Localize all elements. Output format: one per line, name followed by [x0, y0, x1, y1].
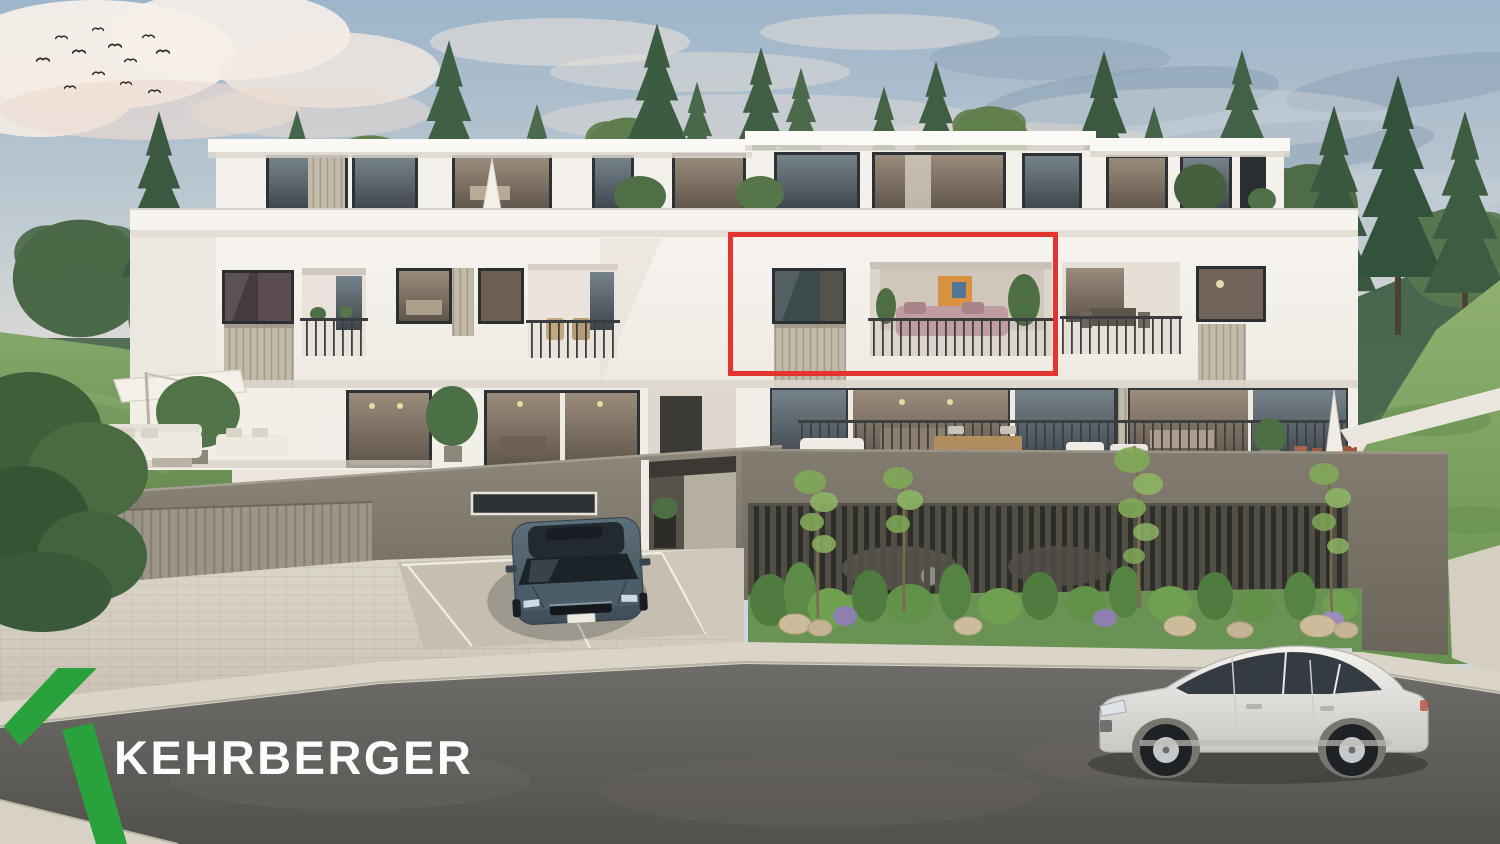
- brand-name: KEHRBERGER: [114, 730, 473, 785]
- window-c: [396, 268, 452, 324]
- window-a: [222, 270, 294, 324]
- apartment-building: [40, 131, 1358, 472]
- wood-slat-screen: [452, 268, 474, 336]
- ventilation-window: [472, 493, 596, 514]
- balcony-h: [1060, 262, 1182, 354]
- window-i: [1196, 266, 1266, 322]
- balcony-b: [300, 268, 368, 356]
- logo-mark-icon: [0, 660, 130, 844]
- penthouse-parapet: [130, 208, 1358, 232]
- penthouse-level: [130, 131, 1358, 237]
- balcony-e: [526, 264, 620, 358]
- parking-podium: [742, 446, 1448, 655]
- window-f-highlighted: [772, 268, 846, 324]
- architectural-rendering: KEHRBERGER: [0, 0, 1500, 844]
- glass-door-left: [346, 390, 432, 468]
- brand-logo: KEHRBERGER: [0, 660, 520, 844]
- access-ramp: [1448, 545, 1500, 676]
- entry-passage: [641, 456, 736, 552]
- window-d: [478, 268, 524, 324]
- balcony-g-highlighted: [868, 262, 1054, 356]
